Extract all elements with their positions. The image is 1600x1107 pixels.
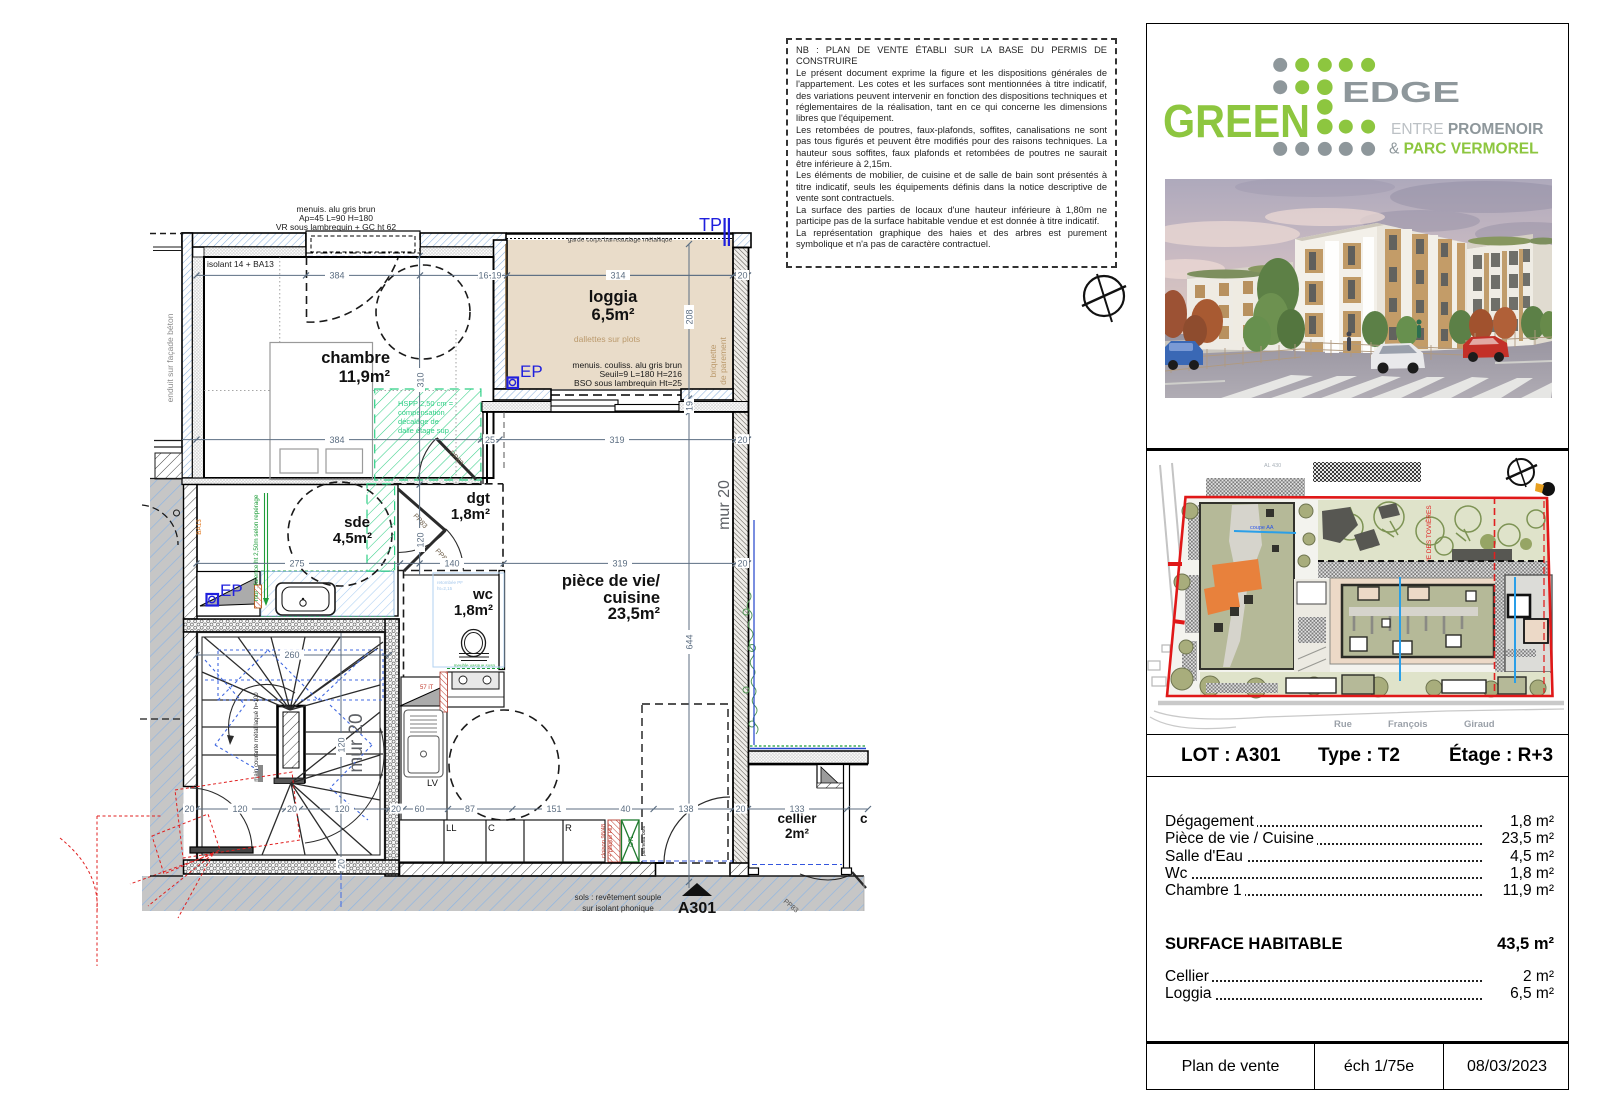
svg-text:retombée PF: retombée PF: [437, 580, 463, 585]
svg-text:EP: EP: [220, 581, 243, 600]
svg-text:23,5m²: 23,5m²: [608, 605, 661, 623]
svg-text:120: 120: [334, 804, 349, 814]
svg-text:LL: LL: [446, 823, 457, 834]
svg-text:wc: wc: [472, 586, 493, 603]
svg-text:60: 60: [414, 804, 424, 814]
svg-text:1,8m²: 1,8m²: [454, 602, 493, 619]
svg-text:11,9m²: 11,9m²: [339, 368, 391, 386]
svg-text:20: 20: [337, 859, 347, 869]
svg-text:Giraud: Giraud: [1464, 719, 1495, 730]
svg-text:main courante métal laqué h=10: main courante métal laqué h=100: [254, 692, 260, 782]
svg-text:dallettes sur plots: dallettes sur plots: [574, 334, 640, 344]
svg-text:GTL: GTL: [629, 835, 635, 847]
svg-text:& PARC VERMOREL: & PARC VERMOREL: [1389, 141, 1539, 158]
svg-text:20: 20: [391, 804, 401, 814]
svg-text:sde: sde: [344, 514, 370, 531]
svg-text:garde corps barreaudage métall: garde corps barreaudage métallique: [568, 237, 673, 244]
svg-text:loggia: loggia: [589, 288, 638, 306]
svg-text:briquette: briquette: [708, 344, 718, 377]
svg-text:319: 319: [609, 435, 624, 445]
svg-text:19: 19: [491, 271, 501, 281]
svg-text:décalage de: décalage de: [398, 417, 439, 426]
svg-text:sur isolant phonique: sur isolant phonique: [582, 904, 654, 913]
svg-text:compensation: compensation: [398, 408, 445, 417]
svg-text:260: 260: [284, 650, 299, 660]
svg-text:57 iT: 57 iT: [420, 685, 434, 691]
svg-text:2m²: 2m²: [785, 826, 810, 841]
svg-text:isolant 14 + BA13: isolant 14 + BA13: [207, 259, 274, 269]
svg-text:120: 120: [232, 804, 247, 814]
svg-text:140: 140: [444, 559, 459, 569]
svg-text:+ plaque HD: + plaque HD: [608, 825, 614, 857]
svg-text:chambre: chambre: [321, 349, 390, 367]
svg-text:mur 20: mur 20: [346, 713, 367, 772]
svg-text:RUE DES TOVIÈRES: RUE DES TOVIÈRES: [1424, 505, 1433, 569]
svg-text:20: 20: [184, 804, 194, 814]
svg-text:ht=2,15: ht=2,15: [437, 586, 453, 591]
svg-text:16: 16: [478, 271, 488, 281]
svg-text:120: 120: [416, 532, 426, 547]
svg-text:151: 151: [546, 804, 561, 814]
svg-text:A301: A301: [678, 900, 716, 917]
svg-text:VR sous lambrequin + GC ht 62: VR sous lambrequin + GC ht 62: [276, 222, 397, 232]
svg-text:20: 20: [737, 435, 747, 445]
svg-text:dalle étage sup: dalle étage sup: [398, 426, 449, 435]
svg-text:LV: LV: [427, 778, 439, 789]
svg-text:R: R: [565, 823, 572, 834]
svg-text:384: 384: [329, 271, 344, 281]
svg-text:mur 20: mur 20: [716, 480, 733, 530]
svg-text:19: 19: [685, 401, 695, 411]
svg-text:20: 20: [735, 804, 745, 814]
svg-text:cloison 98/48: cloison 98/48: [601, 824, 607, 858]
svg-text:EDGE: EDGE: [1342, 77, 1460, 109]
svg-text:384: 384: [329, 435, 344, 445]
svg-text:6,5m²: 6,5m²: [591, 306, 635, 324]
svg-text:EP: EP: [520, 362, 543, 381]
svg-text:mur : faïence ht 2,50m selon r: mur : faïence ht 2,50m selon repérage: [253, 494, 260, 601]
svg-text:sols : revêtement souple: sols : revêtement souple: [575, 893, 662, 902]
svg-text:de parement: de parement: [718, 337, 728, 385]
svg-text:pièce de vie/: pièce de vie/: [562, 572, 661, 590]
svg-text:TP: TP: [699, 215, 722, 235]
svg-text:40: 40: [620, 804, 630, 814]
svg-text:HSFP 2,50 cm =: HSFP 2,50 cm =: [398, 399, 454, 408]
svg-text:275: 275: [289, 559, 304, 569]
svg-text:138: 138: [678, 804, 693, 814]
svg-text:314: 314: [610, 271, 625, 281]
svg-text:20: 20: [287, 804, 297, 814]
svg-text:BSO sous lambrequin Ht=25: BSO sous lambrequin Ht=25: [574, 378, 682, 388]
svg-text:310: 310: [416, 372, 426, 387]
svg-text:dgt: dgt: [467, 490, 490, 507]
svg-text:4,5m²: 4,5m²: [333, 530, 372, 547]
svg-text:1,8m²: 1,8m²: [451, 506, 490, 523]
svg-text:AL 430: AL 430: [1264, 463, 1281, 469]
svg-text:coupe AA: coupe AA: [1250, 525, 1274, 531]
svg-text:133: 133: [789, 804, 804, 814]
svg-text:644: 644: [685, 634, 695, 649]
svg-text:87: 87: [465, 804, 475, 814]
svg-text:Rue: Rue: [1334, 719, 1352, 730]
svg-text:enduit sur façade béton: enduit sur façade béton: [165, 313, 175, 402]
svg-text:208: 208: [685, 309, 695, 324]
svg-text:C: C: [488, 823, 495, 834]
svg-text:GREEN: GREEN: [1163, 95, 1310, 147]
svg-text:c: c: [860, 811, 868, 826]
svg-text:319: 319: [612, 559, 627, 569]
svg-text:20: 20: [737, 559, 747, 569]
svg-text:François: François: [1388, 719, 1428, 730]
svg-text:20: 20: [737, 271, 747, 281]
svg-text:ENTRE PROMENOIR: ENTRE PROMENOIR: [1391, 121, 1543, 138]
svg-text:120: 120: [337, 737, 347, 752]
svg-text:BA13: BA13: [196, 519, 203, 535]
svg-text:25: 25: [485, 435, 495, 445]
